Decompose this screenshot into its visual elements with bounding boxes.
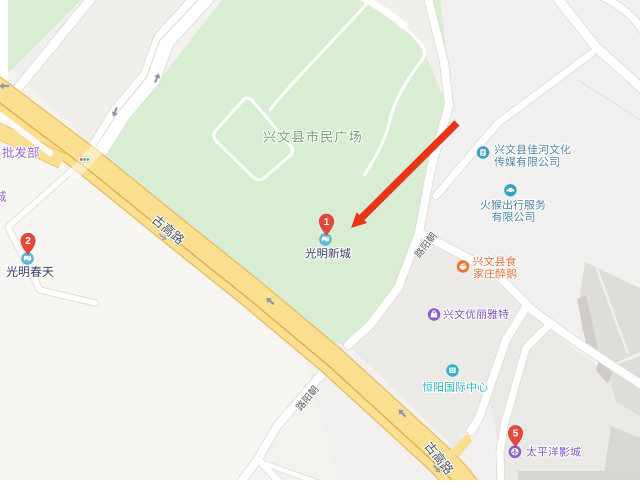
svg-text:1: 1 [324,217,330,228]
svg-text:2: 2 [25,236,31,247]
svg-text:5: 5 [513,428,519,439]
